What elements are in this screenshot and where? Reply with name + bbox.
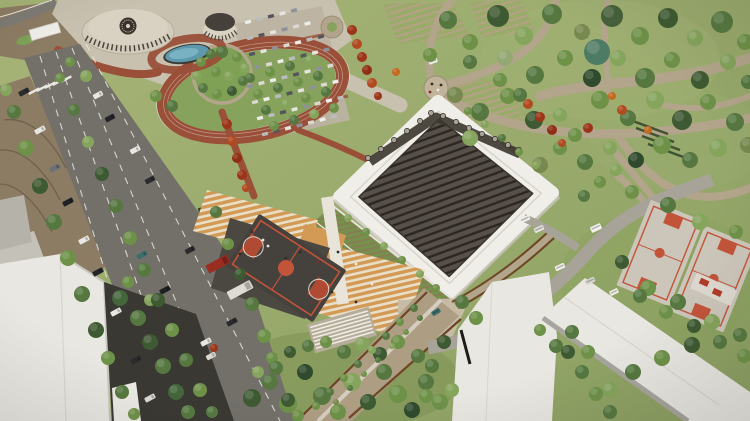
person [317,261,320,264]
tree [628,152,644,168]
tree [312,402,320,410]
tree [347,385,353,391]
tree [88,322,104,338]
path-hub [321,16,343,38]
tree [625,364,641,380]
tree [653,136,671,154]
tree [360,394,376,410]
tree [309,109,319,119]
tree [333,399,339,405]
tree [60,250,76,266]
tree [198,83,208,93]
tree [281,393,295,407]
tree [445,383,459,397]
tree [368,346,376,354]
tree [95,167,109,181]
tree [713,335,727,349]
tree [362,65,372,75]
tree [242,184,250,192]
tree [18,140,34,156]
tree [660,197,676,213]
tree [211,67,221,77]
tree [462,130,478,146]
tree [462,34,478,50]
tree [575,365,589,379]
tree [615,255,629,269]
tree [700,94,716,110]
tree [553,108,567,122]
tree [398,256,406,264]
tree [557,50,573,66]
tree [526,66,544,84]
person [355,263,358,266]
tree [355,337,369,351]
rooftop-unit [391,137,396,142]
tree [631,27,649,45]
tree [654,350,670,366]
tree [302,340,314,352]
tree [285,61,295,71]
tree [193,383,207,397]
tree [733,328,747,342]
tree [269,361,283,375]
tree [589,387,603,401]
person [262,239,265,242]
tree [301,93,311,103]
tree [513,88,527,102]
tree [340,374,348,382]
tree [704,314,720,330]
tree [432,284,440,292]
tree [577,154,593,170]
tree [711,11,733,33]
tree [262,374,278,390]
tree [227,86,237,96]
tree [232,153,242,163]
tree [487,5,509,27]
tree [437,335,451,349]
tree [352,39,362,49]
tree [82,136,94,148]
tree [423,48,437,62]
person [337,251,340,254]
tree [547,125,557,135]
tree [224,71,234,81]
tree [396,318,404,326]
tree [155,358,171,374]
tree [481,120,489,128]
tree [672,110,692,130]
tree [329,103,339,113]
tree [68,104,80,116]
tree [709,139,727,157]
tree [687,30,703,46]
tree [313,71,323,81]
tree [80,70,92,82]
aerial-render [0,0,750,421]
rooftop-unit [466,125,471,130]
person [267,245,270,248]
person [299,251,302,254]
tree [591,91,609,109]
tree [122,276,134,288]
tree [726,113,744,131]
tree [261,105,271,115]
tree [150,90,162,102]
tree [646,91,664,109]
tree [269,121,279,131]
tree [179,353,193,367]
tree [602,382,618,398]
rooftop-unit [505,142,510,147]
tree [357,52,367,62]
tree [321,87,331,97]
tree [584,39,610,65]
tree [326,388,334,396]
person [437,89,440,92]
tree [565,325,579,339]
rotunda-building [203,13,237,39]
tree [237,170,247,180]
person [431,83,434,86]
tree [389,385,407,403]
tree [222,119,232,129]
tree [253,89,263,99]
person [429,91,432,94]
tree [243,389,261,407]
tree [109,199,123,213]
tree [534,324,546,336]
tree [297,364,313,380]
tree [416,270,424,278]
tree [257,329,271,343]
tree [165,323,179,337]
rooftop-unit [440,113,445,118]
tree [608,92,616,100]
rooftop-unit [417,118,422,123]
tree [330,404,346,420]
tree [515,27,533,45]
tree [137,263,151,277]
tree [687,319,701,333]
tree [625,185,639,199]
tree [210,206,222,218]
tree [281,99,291,109]
render-viewport [0,0,750,421]
tree [376,364,392,380]
tree [181,405,195,419]
tree [212,89,222,99]
tree [493,73,507,87]
tree [691,71,709,89]
tree [532,161,540,169]
tree [659,305,673,319]
tree [252,366,264,378]
tree [558,139,566,147]
tree [273,83,283,93]
tree [289,115,299,125]
rooftop-unit [479,131,484,136]
tree [658,8,678,28]
tree [337,345,351,359]
tree [439,11,457,29]
tree [417,315,423,321]
tree [419,389,433,403]
tree [404,402,420,418]
tree [542,4,562,24]
tree [166,100,178,112]
tree [720,54,736,70]
tree [380,242,388,250]
tree [684,337,700,353]
tree [463,55,477,69]
tree [389,343,395,349]
tree [240,63,250,73]
tree [382,332,390,340]
tree [284,346,296,358]
person [311,301,314,304]
rooftop-unit [378,146,383,151]
tree [101,351,115,365]
tree [375,357,381,363]
tree [245,73,255,83]
tree [425,359,439,373]
tree [610,164,622,176]
tree [583,69,601,87]
tree [633,289,647,303]
tree [206,406,218,418]
person [355,301,358,304]
tree [305,55,315,65]
tree [578,190,590,202]
tree [65,57,75,67]
tree [682,152,698,168]
tree [168,384,184,400]
tree [447,87,463,103]
tree [245,297,259,311]
tree [601,5,623,27]
tree [523,99,533,109]
tree [535,112,545,122]
tree [410,304,418,312]
tree [581,345,595,359]
tree [74,286,90,302]
tree [692,214,708,230]
tree [568,128,582,142]
tree [234,268,246,280]
person [331,291,334,294]
tree [403,329,409,335]
tree [46,214,62,230]
tree [142,334,158,350]
tree [644,126,652,134]
tree [464,107,472,115]
person [371,283,374,286]
tree [549,339,563,353]
tree [610,50,626,66]
tree [196,57,206,67]
tree [55,73,65,83]
tree [130,310,146,326]
tree [418,374,434,390]
rooftop-unit [365,155,370,160]
tree [617,105,627,115]
rooftop-unit [428,110,433,115]
tree [123,231,137,245]
rotunda-dome [205,13,235,31]
tree [232,52,242,62]
tree [222,238,234,250]
tree [392,68,400,76]
tree [374,92,382,100]
tree [320,336,332,348]
tree [32,178,48,194]
tree [583,123,593,133]
person [285,257,288,260]
tree [128,408,140,420]
tree [497,50,513,66]
tree [151,293,165,307]
tree [7,105,21,119]
person [239,253,242,256]
tree [0,84,12,96]
tree [227,136,237,146]
tree [603,141,617,155]
tree [293,77,303,87]
tree [603,405,617,419]
tree [344,214,352,222]
tree [635,68,655,88]
tree [206,49,216,59]
tree [471,103,489,121]
tree [594,176,606,188]
rooftop-unit [404,128,409,133]
tree [455,295,469,309]
rooftop-unit [492,136,497,141]
rooftop-unit [453,119,458,124]
tree [729,225,743,239]
tree [265,67,275,77]
tree [574,24,590,40]
tree [354,360,362,368]
tree [411,349,425,363]
tree [112,290,128,306]
tree [367,78,377,88]
tree [498,134,506,142]
tree [515,148,523,156]
tree [361,371,367,377]
tree [664,52,680,68]
tree [670,294,686,310]
tree [210,344,218,352]
person [251,231,254,234]
tree [362,228,370,236]
person [440,84,443,87]
tree [347,25,357,35]
tree [469,311,483,325]
tree [115,385,129,399]
circus-building [82,9,174,54]
tree [216,46,228,58]
tree [432,394,448,410]
tree [561,345,575,359]
tree [192,71,202,81]
